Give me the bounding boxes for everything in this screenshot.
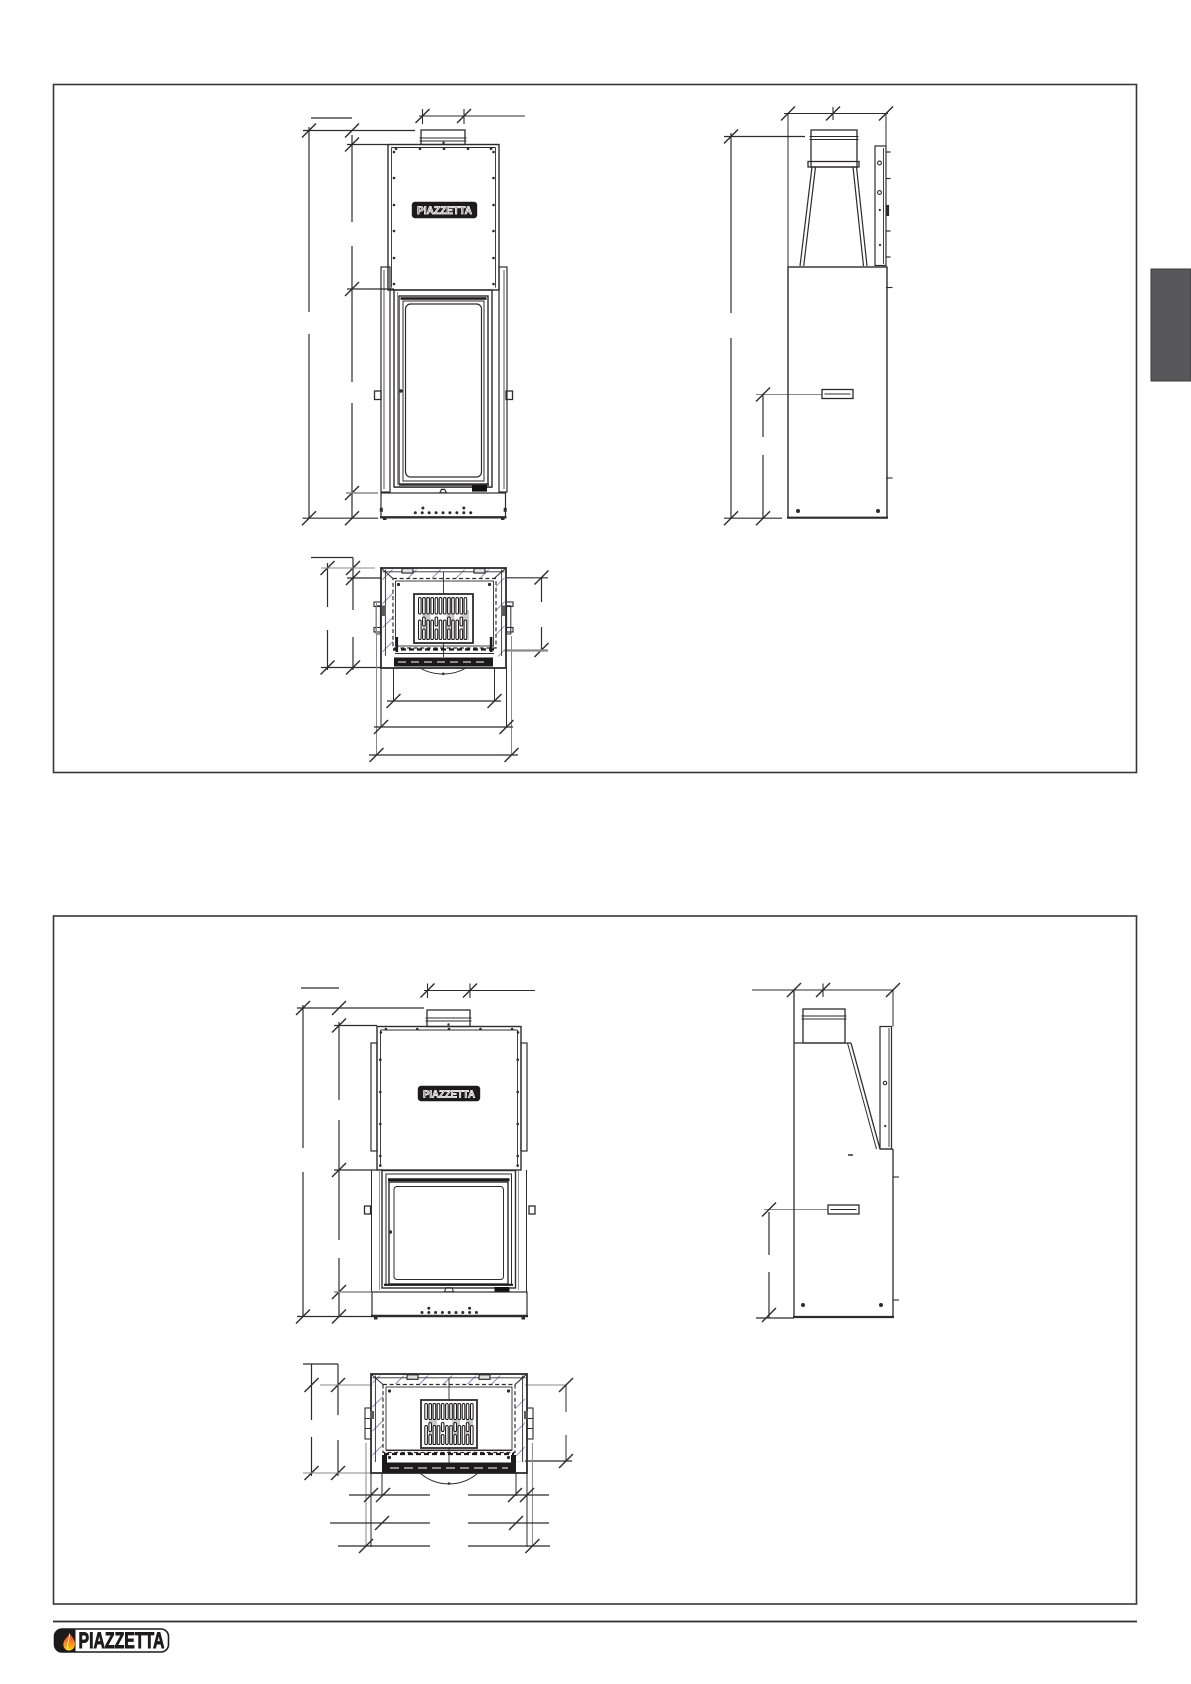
svg-text:PIAZZETTA: PIAZZETTA bbox=[423, 1088, 475, 1100]
svg-text:PIAZZETTA: PIAZZETTA bbox=[79, 1628, 165, 1653]
svg-text:PIAZZETTA: PIAZZETTA bbox=[417, 205, 472, 217]
